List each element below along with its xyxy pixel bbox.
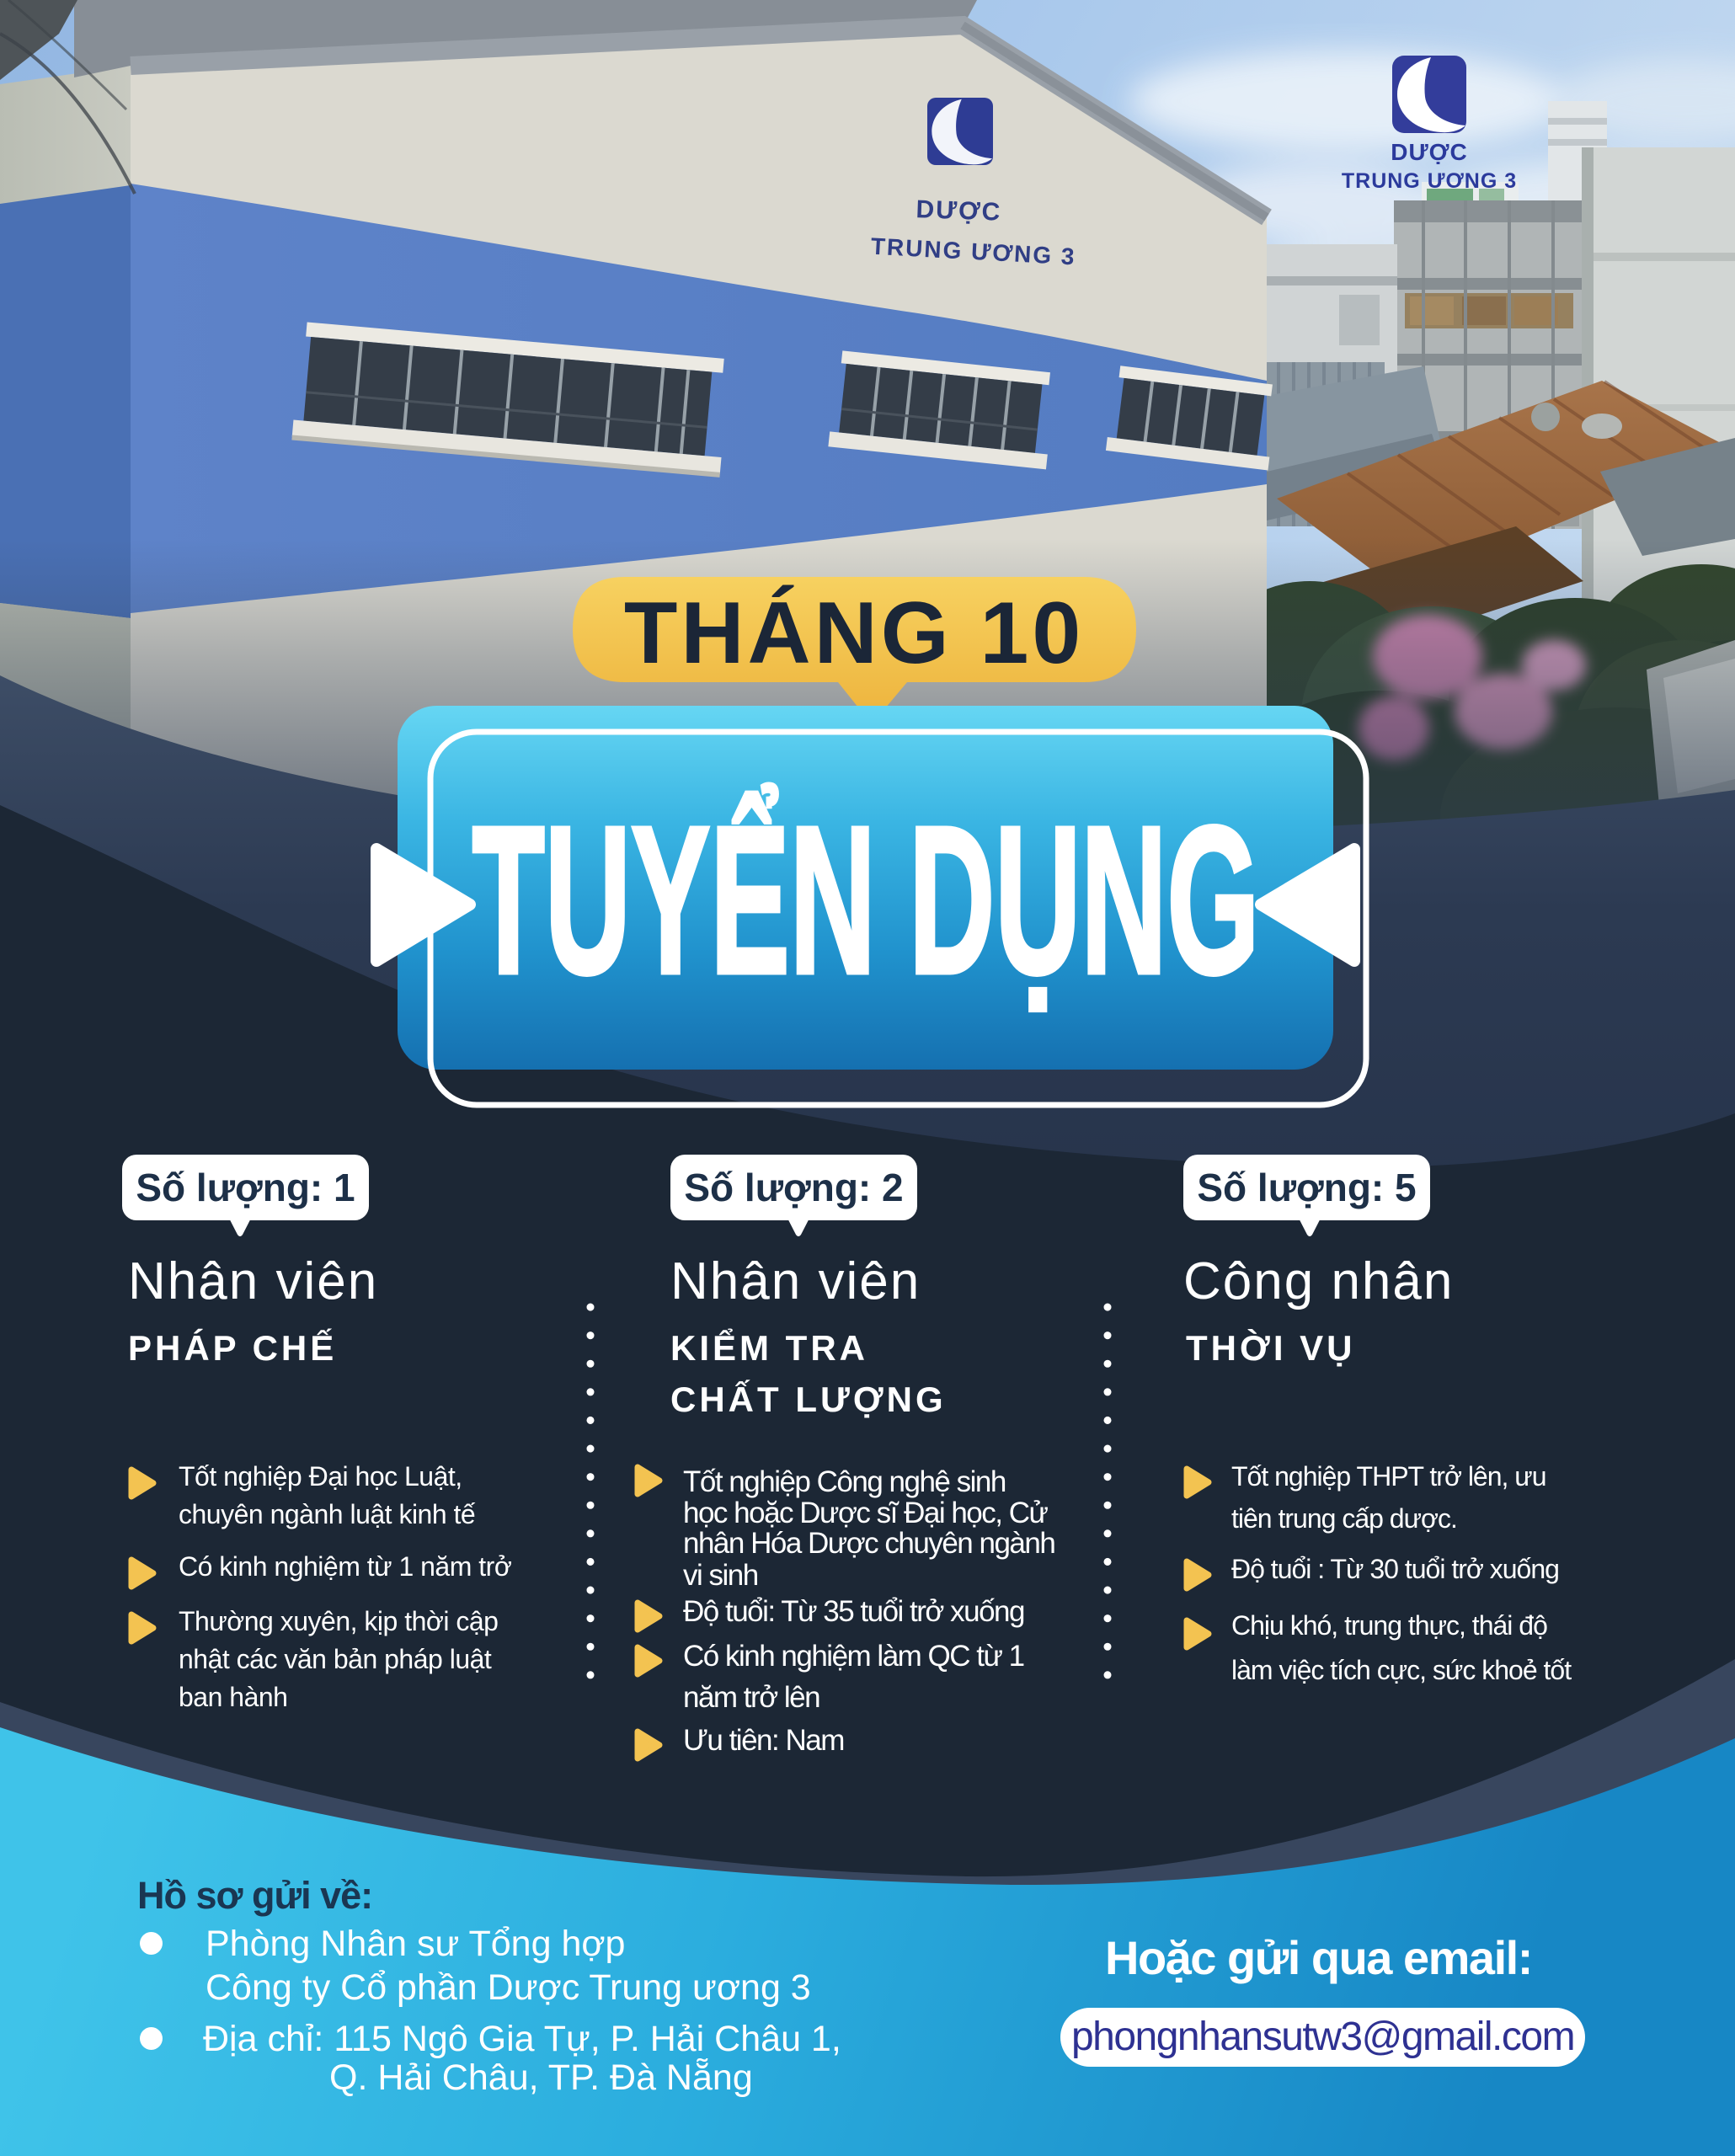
svg-text:DƯỢC: DƯỢC bbox=[1391, 139, 1468, 165]
svg-text:THÁNG 10: THÁNG 10 bbox=[624, 584, 1084, 682]
svg-text:TUYỂN DỤNG: TUYỂN DỤNG bbox=[472, 782, 1260, 1017]
svg-text:TRUNG ƯƠNG 3: TRUNG ƯƠNG 3 bbox=[1342, 169, 1517, 193]
